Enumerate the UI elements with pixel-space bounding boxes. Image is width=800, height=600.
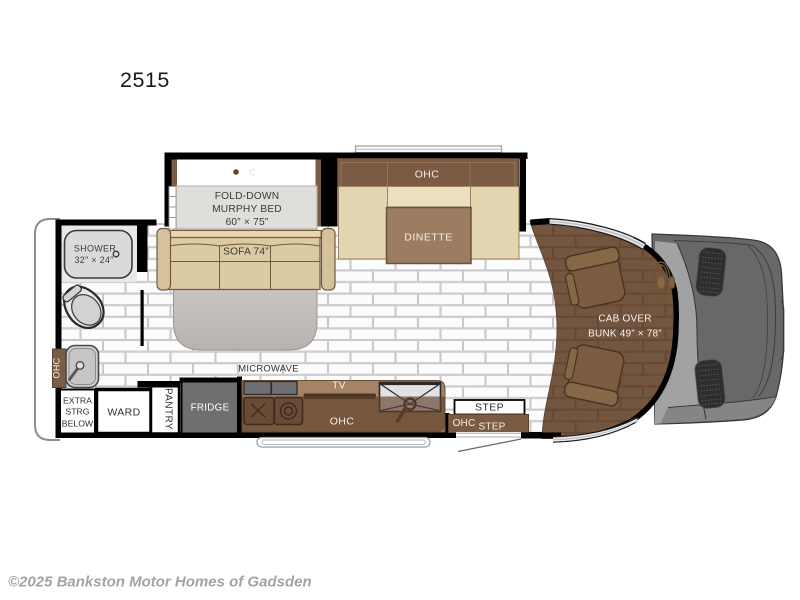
svg-text:32” × 24”: 32” × 24” [75, 255, 114, 265]
svg-text:SHOWER: SHOWER [74, 244, 117, 254]
svg-text:MICROWAVE: MICROWAVE [238, 363, 299, 374]
svg-text:CAB OVER: CAB OVER [598, 314, 651, 325]
svg-text:BELOW: BELOW [62, 419, 94, 429]
svg-text:OHC: OHC [330, 416, 355, 428]
svg-text:STRG: STRG [65, 407, 89, 417]
svg-text:OHC: OHC [415, 169, 440, 181]
svg-text:OHC: OHC [453, 418, 476, 429]
svg-text:FRIDGE: FRIDGE [191, 403, 230, 414]
svg-text:WARD: WARD [107, 407, 140, 419]
svg-text:©2025 Bankston Motor Homes of: ©2025 Bankston Motor Homes of Gadsden [8, 574, 312, 591]
svg-text:60” × 75”: 60” × 75” [226, 217, 269, 228]
svg-text:TV: TV [332, 381, 346, 392]
svg-text:OHC: OHC [52, 357, 62, 378]
svg-text:2515: 2515 [120, 68, 170, 92]
svg-text:DINETTE: DINETTE [404, 232, 452, 244]
svg-text:C: C [249, 168, 256, 178]
svg-text:STEP: STEP [479, 422, 506, 433]
svg-text:BUNK 49” × 78”: BUNK 49” × 78” [588, 329, 662, 340]
svg-text:SOFA 74”: SOFA 74” [223, 247, 269, 258]
svg-text:EXTRA: EXTRA [63, 396, 92, 406]
svg-text:STEP: STEP [475, 402, 504, 414]
svg-text:PANTRY: PANTRY [163, 388, 174, 430]
svg-text:MURPHY BED: MURPHY BED [212, 204, 282, 215]
svg-text:FOLD-DOWN: FOLD-DOWN [215, 191, 280, 202]
